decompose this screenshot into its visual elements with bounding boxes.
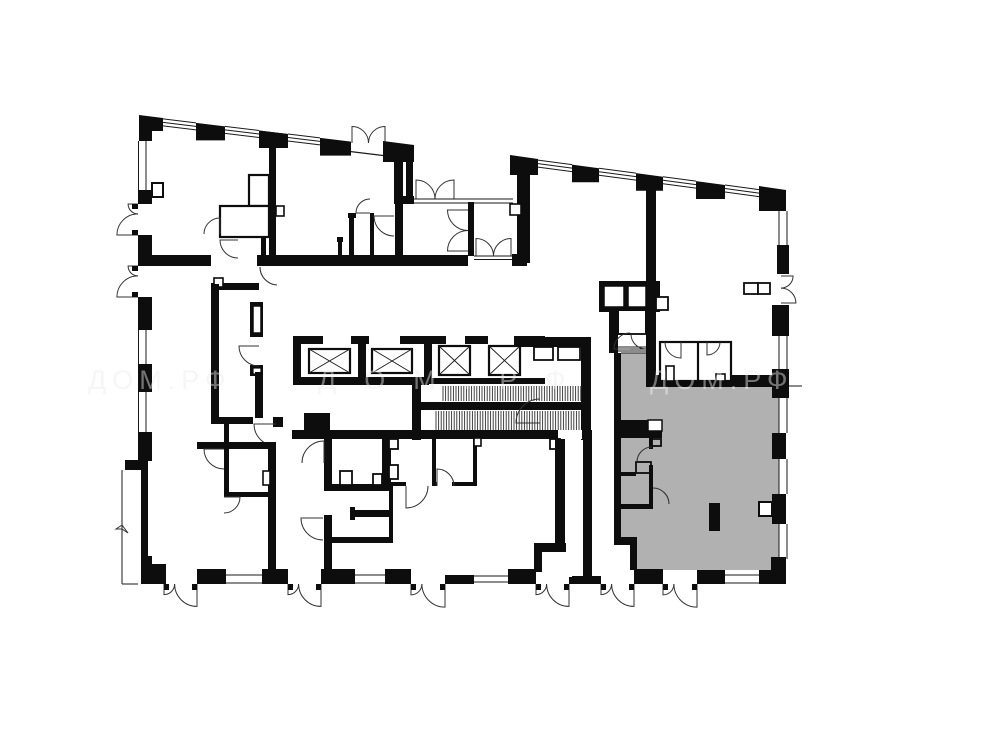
svg-text:ДОМ.РФ: ДОМ.РФ — [650, 365, 794, 395]
svg-text:ДОМ.РФ: ДОМ.РФ — [318, 365, 594, 395]
svg-text:ДОМ.РФ: ДОМ.РФ — [88, 365, 232, 395]
